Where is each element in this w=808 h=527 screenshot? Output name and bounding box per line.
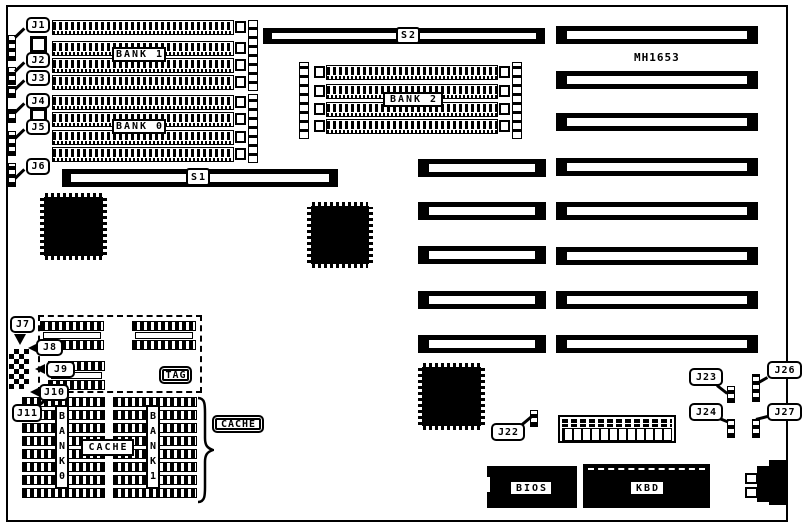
expansion-slot — [418, 291, 546, 309]
expansion-slot — [418, 246, 546, 264]
simm-rail — [299, 62, 309, 139]
callout-j24: J24 — [689, 403, 723, 421]
qfp-chip — [40, 193, 107, 260]
expansion-slot — [556, 335, 758, 353]
cache-callout: CACHE — [212, 415, 264, 433]
callout-j3: J3 — [26, 70, 50, 86]
expansion-slot — [556, 202, 758, 220]
simm-socket — [52, 147, 234, 162]
callout-j7: J7 — [10, 316, 35, 333]
cache-sram-row — [113, 488, 197, 498]
callout-j22: J22 — [491, 423, 525, 441]
callout-j27: J27 — [767, 403, 802, 421]
simm-rail — [248, 20, 258, 91]
expansion-slot — [556, 291, 758, 309]
jumper-j27 — [752, 419, 760, 438]
cache-bank1-vertical-label: BANK1 — [146, 405, 160, 489]
slot-s1-label: S1 — [186, 168, 210, 186]
jumper-j23 — [727, 386, 735, 403]
simm-socket — [52, 20, 234, 35]
kbd-label: KBD — [629, 480, 665, 496]
keyboard-connector — [769, 501, 787, 505]
expansion-slot — [556, 71, 758, 89]
jumper-j24 — [727, 419, 735, 438]
jumper-j26 — [752, 374, 760, 402]
qfp-chip — [307, 202, 373, 268]
expansion-slot — [418, 159, 546, 177]
motherboard-diagram: BANK 1 BANK 0 J1 J2 J3 J4 J5 J6 S2 S1 BA… — [0, 0, 808, 527]
cache-brace — [196, 396, 214, 504]
expansion-slot — [556, 113, 758, 131]
cache-bank0-vertical-label: BANK0 — [55, 405, 69, 489]
callout-j8: J8 — [36, 339, 63, 356]
callout-j5: J5 — [26, 119, 50, 135]
callout-j23: J23 — [689, 368, 723, 386]
kbd-chip-stripe — [588, 468, 705, 470]
callout-j2: J2 — [26, 52, 50, 68]
keyboard-connector — [769, 460, 787, 467]
pin-header-connector — [558, 415, 676, 443]
jumper-block-j7-j10 — [9, 349, 29, 389]
keyboard-connector-tab — [745, 487, 758, 498]
simm-socket — [326, 119, 498, 134]
dip-socket — [132, 321, 196, 350]
keyboard-connector — [757, 466, 787, 502]
keyboard-connector-tab — [745, 473, 758, 484]
tag-label: TAG — [159, 366, 192, 384]
callout-j9: J9 — [46, 361, 75, 378]
bios-chip-notch — [485, 477, 490, 492]
callout-j26: J26 — [767, 361, 802, 379]
bank0-label: BANK 0 — [112, 119, 166, 134]
bios-label: BIOS — [509, 480, 553, 496]
expansion-slot — [556, 247, 758, 265]
callout-j11: J11 — [12, 404, 42, 422]
expansion-slot — [556, 26, 758, 44]
qfp-chip — [418, 363, 485, 430]
jumper-j1 — [8, 35, 16, 61]
expansion-slot — [418, 335, 546, 353]
simm-latch — [30, 36, 47, 53]
callout-tail — [35, 364, 45, 374]
callout-j6: J6 — [26, 158, 50, 175]
simm-rail — [248, 94, 258, 163]
simm-socket — [52, 95, 234, 110]
simm-socket — [326, 65, 498, 80]
callout-tail — [14, 334, 26, 345]
bank1-label: BANK 1 — [112, 47, 166, 62]
board-model-text: MH1653 — [634, 51, 680, 64]
callout-j10: J10 — [39, 384, 69, 401]
callout-j1: J1 — [26, 17, 50, 33]
slot-s2-label: S2 — [396, 27, 420, 44]
bank2-label: BANK 2 — [383, 92, 443, 107]
simm-socket — [52, 75, 234, 90]
callout-j4: J4 — [26, 93, 50, 109]
expansion-slot — [418, 202, 546, 220]
cache-sram-row — [22, 488, 105, 498]
cache-label: CACHE — [81, 439, 134, 456]
simm-rail — [512, 62, 522, 139]
expansion-slot — [556, 158, 758, 176]
